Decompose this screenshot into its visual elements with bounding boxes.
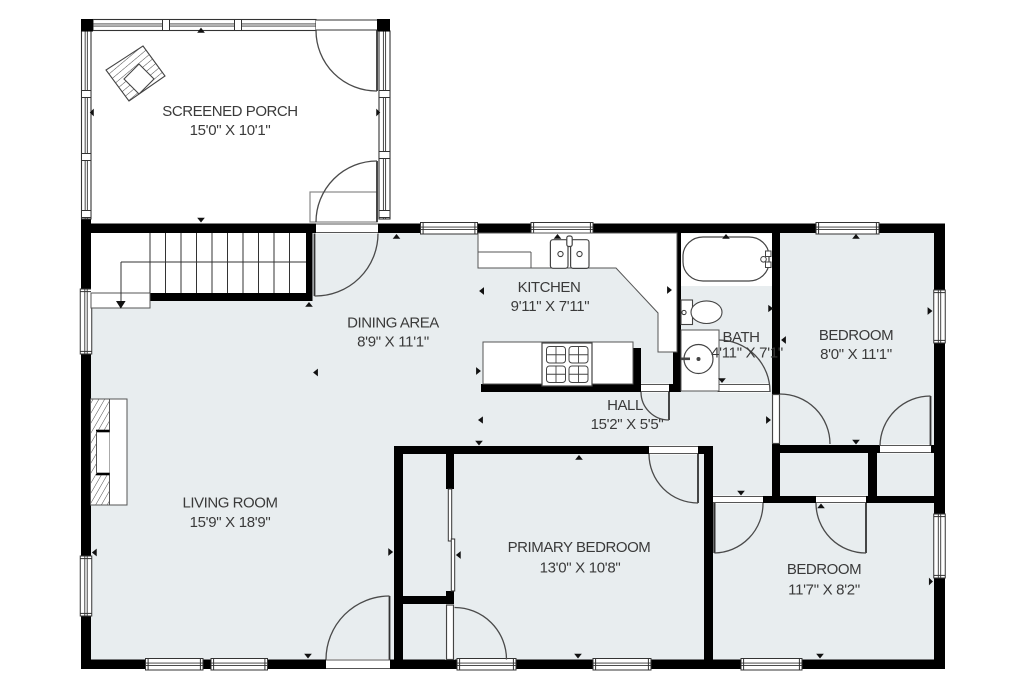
svg-text:15'2" X 5'5": 15'2" X 5'5" [591,416,664,433]
svg-text:13'0" X 10'8": 13'0" X 10'8" [540,560,621,577]
svg-text:PRIMARY BEDROOM: PRIMARY BEDROOM [508,539,651,556]
svg-text:BATH: BATH [722,329,759,346]
svg-text:DINING AREA: DINING AREA [347,315,439,332]
svg-text:BEDROOM: BEDROOM [819,327,893,344]
svg-text:HALL: HALL [607,397,643,414]
svg-text:8'9" X 11'1": 8'9" X 11'1" [357,334,429,351]
svg-text:15'9" X 18'9": 15'9" X 18'9" [190,514,271,531]
svg-text:4'11" X 7'1": 4'11" X 7'1" [711,345,783,362]
svg-text:8'0" X 11'1": 8'0" X 11'1" [820,346,892,363]
svg-text:11'7" X 8'2": 11'7" X 8'2" [788,582,860,599]
svg-text:SCREENED PORCH: SCREENED PORCH [162,103,297,120]
svg-text:LIVING ROOM: LIVING ROOM [182,495,277,512]
svg-text:KITCHEN: KITCHEN [518,279,581,296]
svg-text:BEDROOM: BEDROOM [787,561,861,578]
svg-text:9'11" X 7'11": 9'11" X 7'11" [511,298,590,315]
svg-text:15'0" X 10'1": 15'0" X 10'1" [190,122,271,139]
